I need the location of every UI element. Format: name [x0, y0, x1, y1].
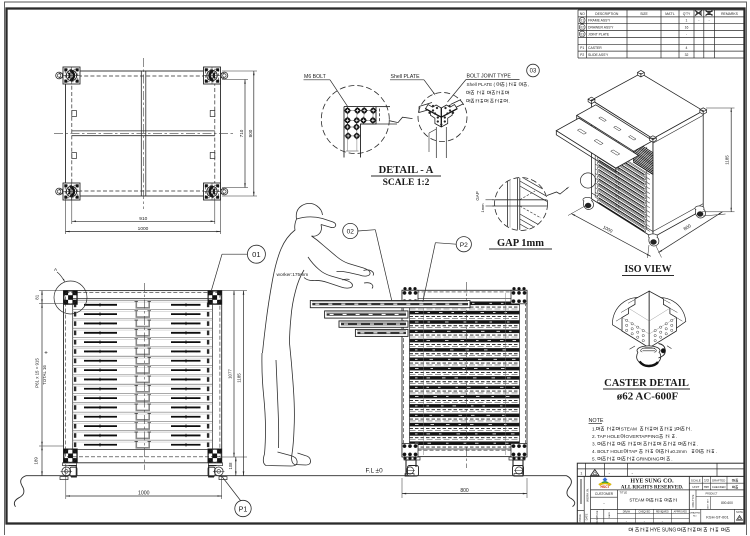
svg-text:3.: 3.: [592, 442, 596, 447]
svg-text:CHECKED: CHECKED: [712, 485, 726, 489]
svg-text:SLIDE ASS'Y: SLIDE ASS'Y: [588, 53, 609, 57]
svg-text:.: .: [676, 434, 677, 439]
svg-text:NO: NO: [580, 12, 585, 16]
svg-text:Shell PLATE: Shell PLATE: [391, 74, 421, 80]
svg-text:±0.2mm: ±0.2mm: [670, 449, 687, 454]
svg-text:ALL RIGHTS RESERVED.: ALL RIGHTS RESERVED.: [621, 485, 684, 491]
svg-text:4: 4: [686, 46, 688, 50]
svg-text:02: 02: [580, 25, 584, 29]
svg-text:DESCRIPTION: DESCRIPTION: [595, 12, 619, 16]
svg-text:P1: P1: [580, 46, 584, 50]
svg-text:GAP: GAP: [475, 191, 480, 200]
svg-text:DRAWER ASS'Y: DRAWER ASS'Y: [588, 26, 614, 30]
svg-text:108: 108: [228, 462, 233, 470]
svg-text:APPROVED: APPROVED: [674, 511, 688, 514]
svg-text:worker:175mm: worker:175mm: [277, 272, 309, 278]
svg-text:Q'TY: Q'TY: [683, 12, 691, 16]
svg-text:DETAIL - A: DETAIL - A: [379, 165, 434, 176]
svg-text:DRAFTED: DRAFTED: [712, 478, 725, 482]
svg-text:TITLE: TITLE: [620, 491, 628, 495]
svg-text:01: 01: [580, 19, 584, 23]
svg-text:NOTE: NOTE: [736, 511, 743, 514]
svg-text:32: 32: [685, 53, 689, 57]
svg-text:SCALE 1:2: SCALE 1:2: [383, 178, 430, 188]
svg-text:ø62 AC-600F: ø62 AC-600F: [617, 391, 679, 403]
svg-text:ISO VIEW: ISO VIEW: [624, 264, 671, 275]
svg-text:800-600: 800-600: [721, 501, 733, 505]
svg-text:MAT'L: MAT'L: [665, 12, 675, 16]
svg-text:ISSUE: ISSUE: [578, 514, 582, 522]
svg-text:.: .: [716, 449, 717, 454]
svg-text:1: 1: [580, 471, 582, 475]
svg-text:03: 03: [580, 32, 584, 36]
svg-text:FRAME ASS'Y: FRAME ASS'Y: [588, 19, 611, 23]
svg-text:F.L ±0: F.L ±0: [366, 468, 384, 475]
svg-text:NOTE: NOTE: [589, 418, 604, 424]
svg-text:-: -: [686, 32, 687, 36]
svg-text:2. TAP HOLE: 2. TAP HOLE: [592, 434, 620, 439]
svg-text:TAP: TAP: [629, 449, 638, 454]
svg-text:SCALE: SCALE: [691, 478, 701, 482]
svg-text:NO.: NO.: [693, 516, 697, 518]
svg-text:81: 81: [35, 294, 40, 299]
svg-text:1.: 1.: [592, 427, 596, 432]
svg-text:,: ,: [528, 82, 529, 87]
svg-text:5.: 5.: [592, 457, 596, 462]
svg-text:TOTAL 16: TOTAL 16: [42, 365, 47, 385]
svg-text:P2: P2: [460, 242, 468, 249]
svg-text:P61 x 15 = 915: P61 x 15 = 915: [35, 358, 40, 388]
svg-text:DWG TYPE: DWG TYPE: [692, 494, 695, 507]
svg-text:4. BOLT HOLE: 4. BOLT HOLE: [592, 449, 623, 454]
svg-text:REMARKS: REMARKS: [721, 12, 739, 16]
svg-text:P1: P1: [239, 504, 248, 513]
svg-text:910: 910: [139, 216, 147, 222]
svg-text:SIGNATURE: SIGNATURE: [596, 510, 599, 524]
svg-text:800: 800: [460, 488, 469, 494]
svg-text:.: .: [691, 427, 692, 432]
svg-text:Shell PLATE (: Shell PLATE (: [467, 82, 496, 87]
svg-text:CUSTOMER: CUSTOMER: [595, 492, 614, 496]
svg-text:.: .: [671, 457, 672, 462]
svg-text:02: 02: [347, 229, 355, 236]
svg-text:16: 16: [685, 26, 689, 30]
svg-text:1000: 1000: [138, 226, 149, 232]
svg-text:CASTER DETAIL: CASTER DETAIL: [604, 378, 689, 389]
svg-text:UNIT SET: UNIT SET: [707, 498, 709, 509]
svg-text:STEAM: STEAM: [629, 498, 644, 503]
svg-text:DATE: DATE: [585, 513, 589, 520]
svg-text:WORK IN.: WORK IN.: [585, 488, 589, 502]
svg-text:HYE SUNG CO.: HYE SUNG CO.: [630, 478, 674, 484]
svg-text:KSH-ST-001: KSH-ST-001: [706, 514, 729, 519]
svg-text:P2: P2: [580, 53, 584, 57]
svg-text:1mm: 1mm: [480, 203, 485, 213]
svg-text:1185: 1185: [237, 373, 242, 383]
svg-text:GAP 1mm: GAP 1mm: [497, 238, 544, 249]
svg-text:mm: mm: [704, 485, 710, 489]
svg-text:HSCT: HSCT: [601, 485, 610, 489]
svg-text:03: 03: [530, 69, 537, 75]
svg-text:HYE SUNG: HYE SUNG: [650, 528, 676, 534]
svg-text:UNIT: UNIT: [692, 485, 699, 489]
svg-text:BOLT JOINT TYPE: BOLT JOINT TYPE: [467, 74, 512, 80]
svg-text:PRODUCT: PRODUCT: [706, 492, 718, 495]
svg-text:1185: 1185: [724, 155, 729, 165]
svg-text:.: .: [508, 99, 509, 104]
svg-text:1/3: 1/3: [704, 478, 709, 482]
svg-text:1077: 1077: [227, 369, 232, 379]
svg-text:189: 189: [34, 457, 39, 465]
svg-text:CASTER: CASTER: [588, 46, 602, 50]
svg-text:1000: 1000: [138, 491, 150, 497]
svg-text:OVERTAPPING: OVERTAPPING: [626, 434, 660, 439]
svg-text:01: 01: [252, 250, 260, 259]
svg-text:.: .: [697, 442, 698, 447]
svg-text:1: 1: [686, 19, 688, 23]
svg-text:SIZE: SIZE: [640, 12, 648, 16]
svg-text:DATE: DATE: [608, 511, 611, 517]
svg-text:800: 800: [248, 129, 253, 137]
svg-text:GRINDING: GRINDING: [636, 457, 660, 462]
svg-text:M6 BOLT: M6 BOLT: [304, 74, 327, 80]
svg-text:DRAWING: DRAWING: [690, 512, 701, 515]
svg-text:JOINT PLATE: JOINT PLATE: [588, 32, 610, 36]
svg-text:STEAM: STEAM: [621, 427, 637, 432]
svg-text:710: 710: [239, 129, 244, 137]
svg-text:1: 1: [674, 427, 677, 432]
